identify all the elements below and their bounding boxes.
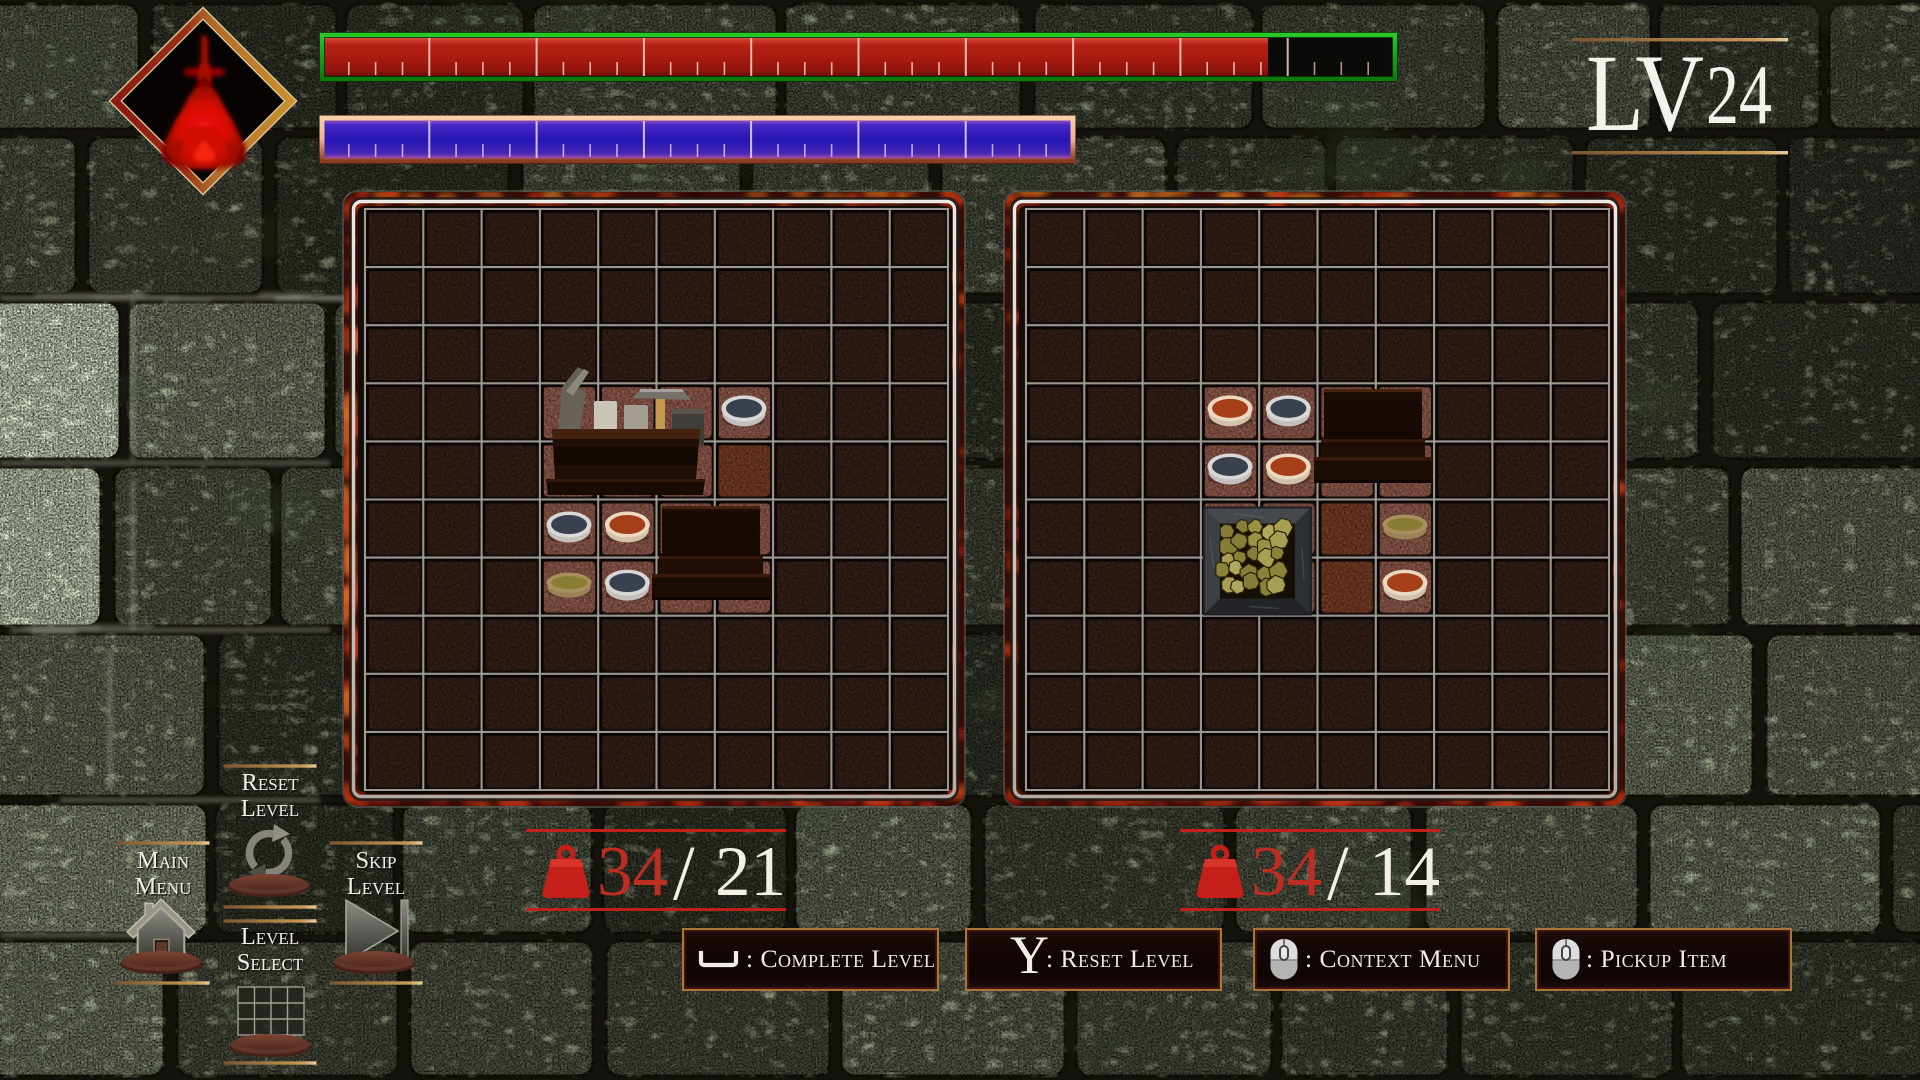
svg-text:: Pickup Item: : Pickup Item [1586,944,1727,973]
svg-text:Y: Y [1010,925,1049,985]
svg-text:/: / [673,829,695,916]
svg-text:14: 14 [1369,833,1440,911]
svg-text:Level: Level [241,923,299,950]
svg-text:Level: Level [241,795,299,822]
svg-text:Level: Level [347,873,405,900]
svg-text:Main: Main [137,847,189,874]
svg-text:Select: Select [237,949,304,976]
svg-text:Skip: Skip [355,847,396,874]
svg-text:LV: LV [1586,32,1704,154]
svg-text:Reset: Reset [242,769,300,796]
svg-text:34: 34 [597,833,668,911]
svg-text:: Context Menu: : Context Menu [1305,944,1481,973]
svg-text:: Reset Level: : Reset Level [1046,944,1194,973]
svg-text:34: 34 [1251,833,1322,911]
svg-text:/: / [1327,829,1349,916]
svg-text:24: 24 [1706,48,1772,142]
svg-text:21: 21 [715,833,786,911]
svg-text:Menu: Menu [135,873,192,900]
svg-text:: Complete Level: : Complete Level [746,944,935,973]
